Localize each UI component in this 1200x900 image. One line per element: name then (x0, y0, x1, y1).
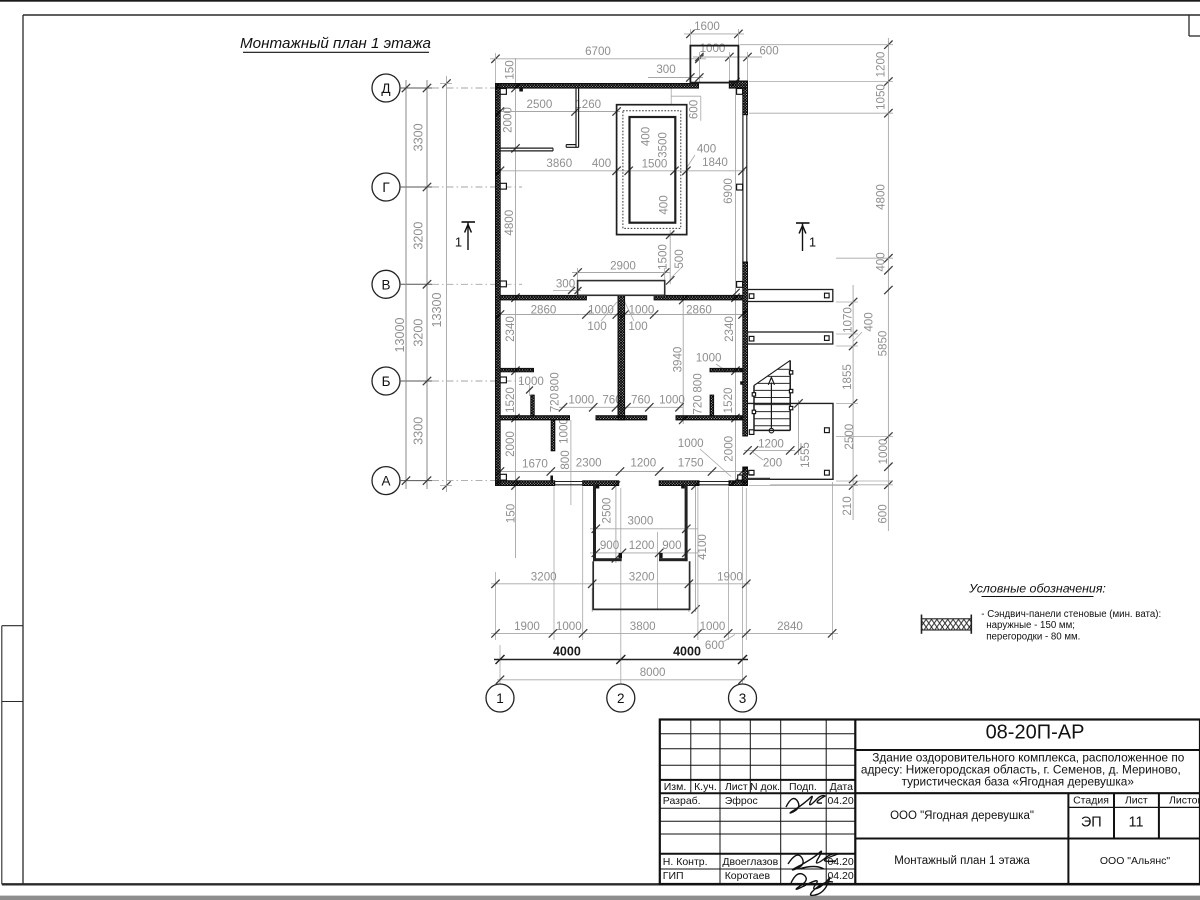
svg-text:1000: 1000 (877, 439, 890, 465)
svg-text:Лист: Лист (725, 781, 748, 793)
svg-text:300: 300 (656, 63, 675, 76)
svg-text:400: 400 (640, 127, 653, 146)
svg-text:1000: 1000 (568, 393, 594, 406)
svg-text:11: 11 (1128, 815, 1143, 831)
svg-text:1: 1 (496, 691, 504, 706)
svg-text:720: 720 (548, 393, 561, 412)
svg-text:100: 100 (587, 320, 606, 333)
svg-text:600: 600 (688, 100, 701, 119)
svg-text:3: 3 (739, 691, 747, 706)
svg-text:наружные - 150 мм;: наружные - 150 мм; (986, 620, 1075, 631)
svg-text:3500: 3500 (657, 132, 670, 158)
svg-text:2500: 2500 (601, 498, 614, 524)
svg-text:1000: 1000 (659, 393, 685, 406)
svg-text:1000: 1000 (518, 375, 544, 388)
svg-text:150: 150 (504, 504, 517, 523)
svg-text:Листов: Листов (1169, 795, 1200, 807)
svg-text:4000: 4000 (673, 645, 701, 659)
svg-text:1555: 1555 (799, 442, 812, 468)
svg-text:04.20: 04.20 (827, 856, 853, 868)
svg-text:А: А (381, 474, 390, 489)
svg-text:1200: 1200 (758, 438, 784, 451)
svg-text:400: 400 (592, 157, 611, 170)
svg-text:1900: 1900 (514, 620, 540, 633)
svg-text:Монтажный план 1 этажа: Монтажный план 1 этажа (240, 35, 431, 52)
svg-text:1050: 1050 (875, 84, 888, 110)
svg-text:1000: 1000 (700, 42, 726, 55)
svg-text:N док.: N док. (750, 781, 780, 793)
svg-text:04.20: 04.20 (827, 795, 853, 807)
svg-text:Д: Д (381, 81, 390, 96)
svg-text:2340: 2340 (504, 316, 517, 342)
svg-text:2340: 2340 (723, 316, 736, 342)
svg-text:3200: 3200 (411, 319, 425, 347)
svg-text:900: 900 (600, 539, 619, 552)
svg-text:720: 720 (692, 395, 705, 414)
svg-text:1000: 1000 (557, 418, 570, 444)
svg-text:1855: 1855 (841, 364, 854, 390)
svg-text:1670: 1670 (522, 458, 548, 471)
svg-text:800: 800 (692, 373, 705, 392)
svg-text:150: 150 (504, 60, 517, 79)
svg-text:1: 1 (455, 235, 462, 250)
svg-text:2860: 2860 (531, 304, 557, 317)
svg-text:3200: 3200 (629, 571, 655, 584)
svg-text:400: 400 (875, 252, 888, 271)
svg-text:Подп.: Подп. (789, 781, 817, 793)
svg-text:Дата: Дата (830, 781, 853, 793)
svg-text:600: 600 (759, 45, 778, 58)
svg-text:4000: 4000 (553, 645, 581, 659)
svg-text:3860: 3860 (546, 157, 572, 170)
svg-text:1500: 1500 (642, 158, 668, 171)
svg-text:4800: 4800 (503, 210, 516, 236)
svg-text:2860: 2860 (686, 304, 712, 317)
svg-text:2500: 2500 (527, 98, 553, 111)
svg-text:В: В (381, 277, 390, 292)
svg-text:1200: 1200 (629, 539, 655, 552)
svg-text:Н. Контр.: Н. Контр. (663, 856, 708, 868)
svg-text:6900: 6900 (722, 178, 735, 204)
svg-text:800: 800 (559, 450, 572, 469)
svg-text:1200: 1200 (875, 52, 888, 78)
svg-text:04.20: 04.20 (827, 870, 853, 882)
svg-text:1900: 1900 (717, 571, 743, 584)
svg-text:600: 600 (705, 639, 724, 652)
svg-text:5850: 5850 (877, 331, 890, 357)
svg-text:3200: 3200 (411, 222, 425, 250)
svg-text:2840: 2840 (777, 620, 803, 633)
svg-text:ООО "Альянс": ООО "Альянс" (1100, 855, 1170, 867)
svg-text:1000: 1000 (678, 437, 704, 450)
svg-text:3300: 3300 (411, 123, 425, 151)
svg-text:2: 2 (617, 691, 625, 706)
svg-text:6700: 6700 (585, 45, 611, 58)
svg-text:500: 500 (673, 249, 686, 268)
svg-text:- Сэндвич-панели стеновые (мин: - Сэндвич-панели стеновые (мин. вата): (981, 609, 1161, 620)
svg-text:600: 600 (877, 504, 890, 523)
svg-text:3940: 3940 (671, 347, 684, 373)
svg-text:2000: 2000 (723, 436, 736, 462)
svg-text:Разраб.: Разраб. (663, 795, 701, 807)
svg-text:8000: 8000 (640, 666, 666, 679)
svg-text:100: 100 (628, 320, 647, 333)
svg-text:1500: 1500 (657, 244, 670, 270)
svg-text:900: 900 (662, 539, 681, 552)
svg-text:К.уч.: К.уч. (694, 781, 717, 793)
svg-text:3800: 3800 (630, 620, 656, 633)
svg-text:Эфрос: Эфрос (725, 795, 758, 807)
svg-text:2500: 2500 (843, 424, 856, 450)
svg-text:210: 210 (841, 496, 854, 515)
svg-text:1520: 1520 (722, 388, 735, 414)
svg-text:Г: Г (382, 180, 390, 195)
svg-text:Монтажный план 1 этажа: Монтажный план 1 этажа (894, 855, 1030, 867)
svg-text:760: 760 (631, 393, 650, 406)
svg-text:1000: 1000 (629, 304, 655, 317)
svg-text:перегородки - 80 мм.: перегородки - 80 мм. (986, 631, 1080, 642)
svg-text:2000: 2000 (504, 431, 517, 457)
svg-text:Коротаев: Коротаев (725, 870, 771, 882)
svg-text:Условные обозначения:: Условные обозначения: (968, 582, 1106, 596)
svg-text:08-20П-АР: 08-20П-АР (986, 722, 1085, 744)
svg-text:Двоеглазов: Двоеглазов (722, 856, 778, 868)
svg-text:300: 300 (556, 278, 575, 291)
svg-text:13000: 13000 (393, 317, 407, 352)
svg-text:1750: 1750 (678, 457, 704, 470)
svg-text:2900: 2900 (610, 259, 636, 272)
svg-text:3300: 3300 (411, 417, 425, 445)
svg-text:Изм.: Изм. (664, 781, 687, 793)
svg-text:1520: 1520 (504, 387, 517, 413)
svg-text:1000: 1000 (700, 620, 726, 633)
svg-text:800: 800 (548, 372, 561, 391)
svg-text:1600: 1600 (694, 20, 720, 33)
svg-text:ЭП: ЭП (1081, 815, 1102, 831)
svg-text:туристическая база «Ягодная де: туристическая база «Ягодная деревушка» (902, 774, 1135, 788)
svg-text:1070: 1070 (842, 307, 855, 333)
svg-text:400: 400 (658, 195, 671, 214)
svg-text:3000: 3000 (628, 515, 654, 528)
svg-text:2300: 2300 (576, 457, 602, 470)
svg-text:Стадия: Стадия (1073, 795, 1109, 807)
svg-text:Б: Б (382, 374, 391, 389)
svg-text:1200: 1200 (630, 457, 656, 470)
svg-text:1: 1 (809, 235, 816, 250)
svg-text:1840: 1840 (702, 156, 728, 169)
svg-text:200: 200 (763, 457, 782, 470)
svg-text:ООО "Ягодная деревушка": ООО "Ягодная деревушка" (890, 810, 1034, 822)
svg-text:2000: 2000 (502, 107, 515, 133)
svg-text:1000: 1000 (556, 620, 582, 633)
svg-text:4800: 4800 (875, 184, 888, 210)
svg-text:400: 400 (697, 143, 716, 156)
svg-text:ГИП: ГИП (663, 870, 684, 882)
svg-text:Лист: Лист (1125, 795, 1148, 807)
svg-text:1000: 1000 (696, 352, 722, 365)
svg-text:13300: 13300 (430, 292, 444, 327)
svg-text:3200: 3200 (531, 571, 557, 584)
svg-text:400: 400 (863, 312, 876, 331)
